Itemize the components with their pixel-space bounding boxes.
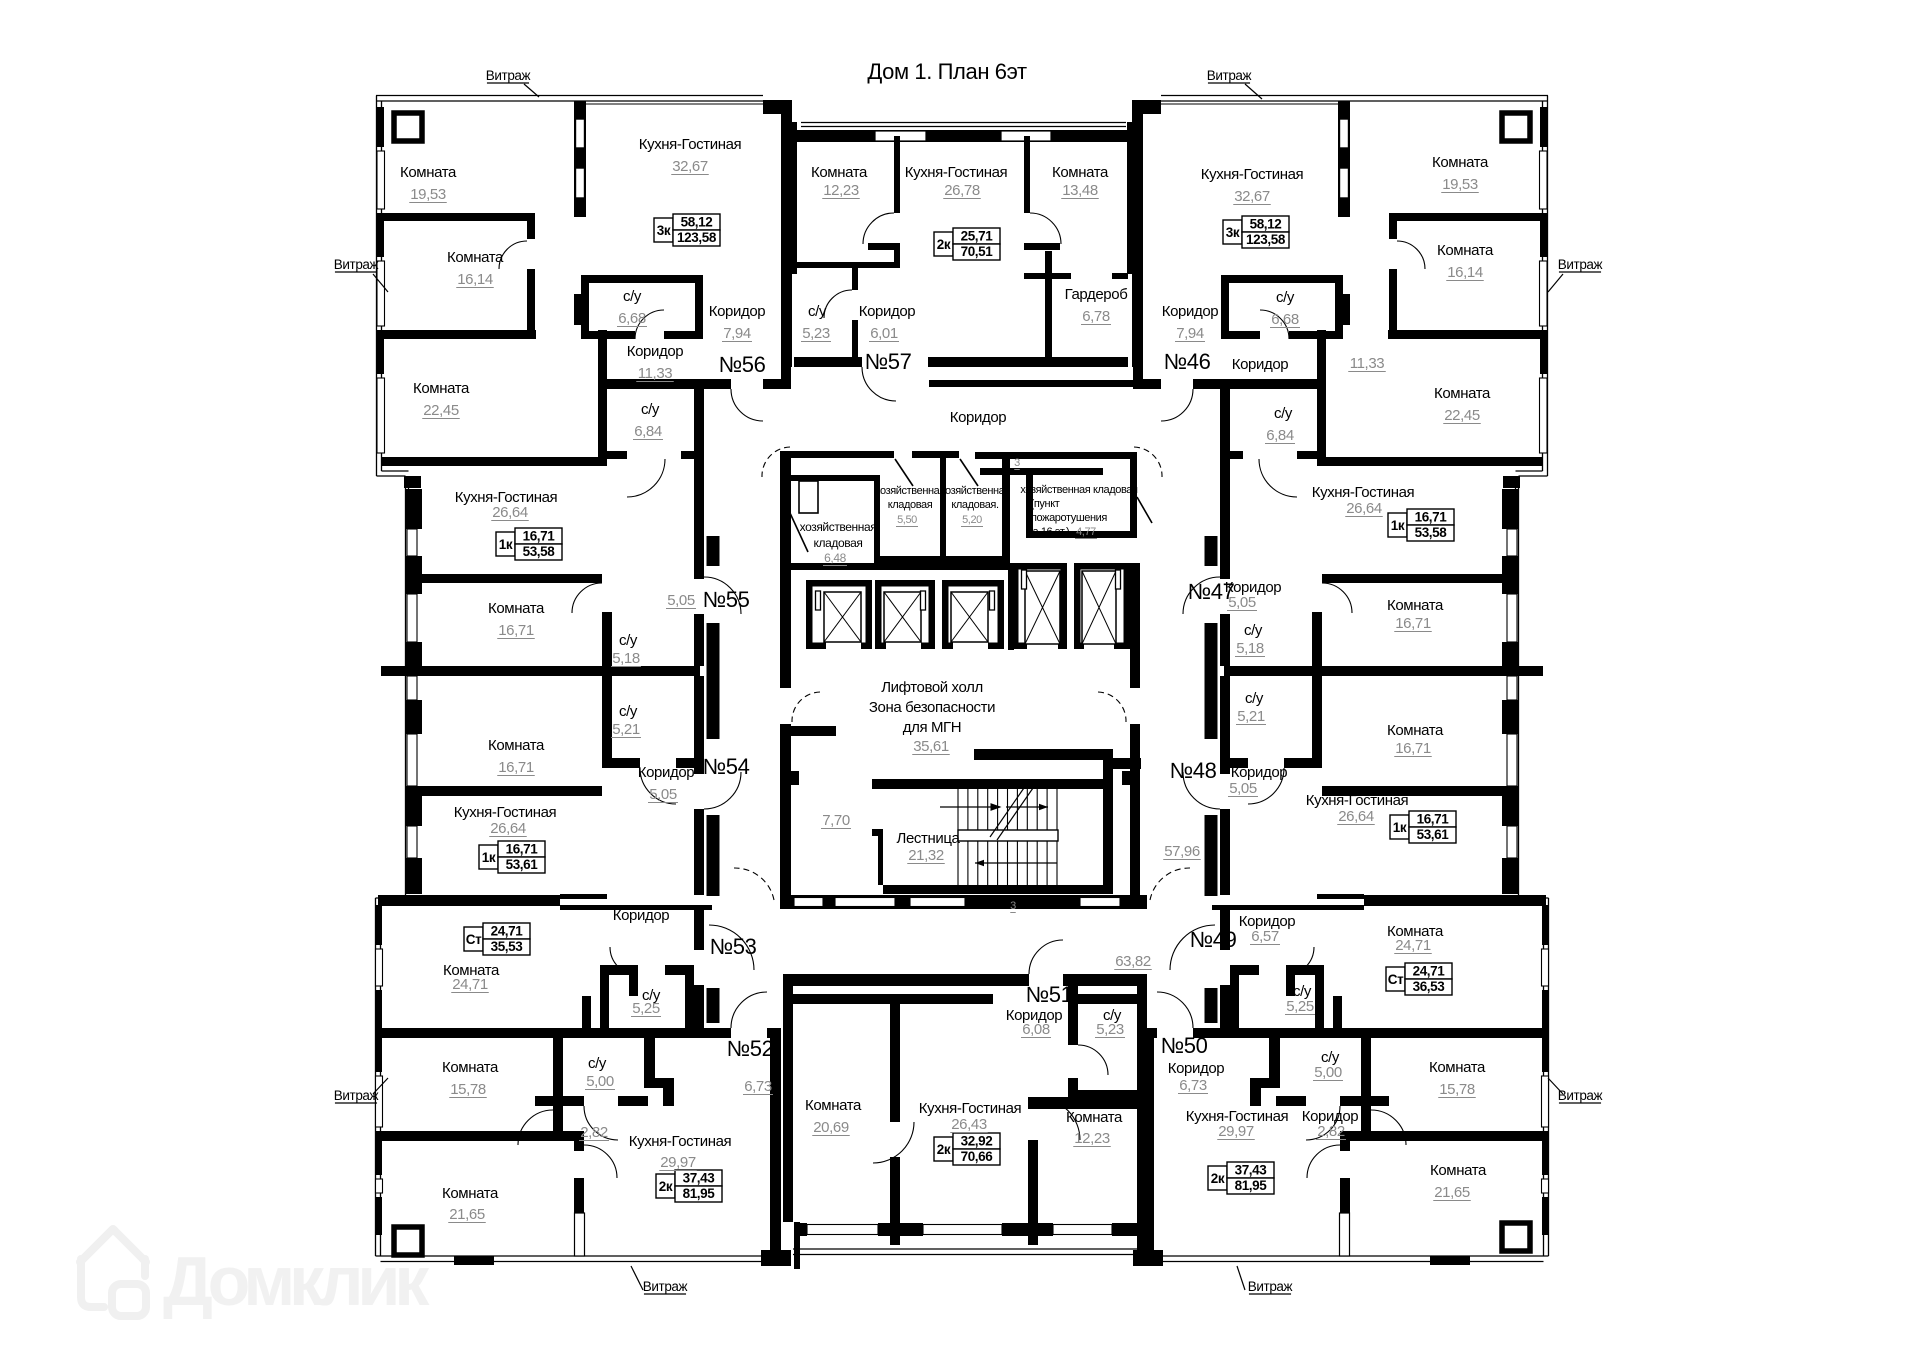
svg-text:1к: 1к (1393, 820, 1407, 835)
svg-text:22,45: 22,45 (423, 402, 459, 419)
svg-text:Кухня-Гостиная: Кухня-Гостиная (454, 804, 557, 821)
svg-text:21,65: 21,65 (1434, 1184, 1470, 1201)
svg-text:3к: 3к (657, 223, 671, 238)
svg-text:29,97: 29,97 (660, 1154, 696, 1171)
svg-text:5,00: 5,00 (1314, 1064, 1342, 1081)
svg-text:81,95: 81,95 (683, 1186, 716, 1201)
svg-text:Комната: Комната (1434, 385, 1491, 402)
svg-text:123,58: 123,58 (677, 230, 717, 245)
svg-text:16,71: 16,71 (498, 622, 534, 639)
svg-text:Витраж: Витраж (334, 257, 379, 272)
svg-text:Лестница: Лестница (897, 830, 961, 847)
svg-text:Коридор: Коридор (950, 409, 1006, 426)
svg-text:26,64: 26,64 (1338, 808, 1374, 825)
svg-text:Комната: Комната (1387, 722, 1444, 739)
svg-text:хозяйственная: хозяйственная (875, 485, 945, 497)
svg-text:№48: №48 (1170, 758, 1217, 783)
svg-text:63,82: 63,82 (1115, 953, 1151, 970)
svg-text:4,77: 4,77 (1076, 526, 1096, 538)
svg-text:5,00: 5,00 (586, 1073, 614, 1090)
svg-text:6,68: 6,68 (618, 310, 646, 327)
svg-text:16,14: 16,14 (457, 271, 493, 288)
svg-text:16,71: 16,71 (1395, 615, 1431, 632)
svg-text:Комната: Комната (1437, 242, 1494, 259)
svg-text:Кухня-Гостиная: Кухня-Гостиная (639, 136, 742, 153)
svg-text:5,23: 5,23 (802, 325, 830, 342)
svg-text:Комната: Комната (1429, 1059, 1486, 1076)
svg-text:7,94: 7,94 (1176, 325, 1204, 342)
svg-text:16,71: 16,71 (523, 529, 556, 544)
svg-text:Гардероб: Гардероб (1065, 286, 1128, 303)
svg-text:Коридор: Коридор (1168, 1060, 1224, 1077)
svg-text:24,71: 24,71 (491, 924, 524, 939)
svg-text:26,64: 26,64 (492, 504, 528, 521)
svg-text:58,12: 58,12 (1250, 217, 1282, 232)
svg-text:6,57: 6,57 (1251, 928, 1279, 945)
svg-text:123,58: 123,58 (1246, 232, 1286, 247)
svg-text:Коридор: Коридор (859, 303, 915, 320)
svg-text:37,43: 37,43 (683, 1171, 716, 1186)
svg-text:3к: 3к (1226, 225, 1240, 240)
svg-text:53,58: 53,58 (523, 544, 556, 559)
svg-text:5,05: 5,05 (1229, 780, 1257, 797)
svg-text:16,71: 16,71 (1417, 812, 1450, 827)
svg-text:с/у: с/у (1276, 289, 1295, 306)
svg-text:Витраж: Витраж (1248, 1279, 1293, 1294)
svg-text:для МГН: для МГН (903, 719, 961, 736)
svg-text:20,69: 20,69 (813, 1119, 849, 1136)
svg-text:Коридор: Коридор (638, 764, 694, 781)
svg-text:на 16 эт.): на 16 эт.) (1027, 526, 1069, 538)
svg-text:24,71: 24,71 (1413, 964, 1446, 979)
svg-text:26,64: 26,64 (490, 820, 526, 837)
svg-text:16,71: 16,71 (498, 759, 534, 776)
svg-text:Комната: Комната (488, 737, 545, 754)
svg-text:№55: №55 (703, 587, 750, 612)
svg-text:1к: 1к (482, 850, 496, 865)
svg-text:6,08: 6,08 (1022, 1021, 1050, 1038)
svg-text:№57: №57 (865, 349, 912, 374)
svg-text:Комната: Комната (442, 1059, 499, 1076)
svg-text:2,82: 2,82 (580, 1124, 608, 1141)
svg-text:Кухня-Гостиная: Кухня-Гостиная (905, 164, 1008, 181)
svg-text:5,25: 5,25 (1286, 998, 1314, 1015)
svg-text:5,25: 5,25 (632, 1000, 660, 1017)
svg-text:Витраж: Витраж (1558, 1088, 1603, 1103)
svg-text:5,50: 5,50 (897, 514, 917, 526)
svg-text:6,68: 6,68 (1271, 311, 1299, 328)
svg-text:70,66: 70,66 (961, 1149, 994, 1164)
svg-text:5,18: 5,18 (1236, 640, 1264, 657)
svg-text:53,58: 53,58 (1415, 525, 1448, 540)
svg-text:24,71: 24,71 (452, 976, 488, 993)
svg-text:Ст: Ст (466, 932, 482, 947)
svg-text:Ст: Ст (1388, 972, 1404, 987)
svg-text:Кухня-Гостиная: Кухня-Гостиная (919, 1100, 1022, 1117)
svg-text:Коридор: Коридор (1232, 356, 1288, 373)
svg-text:Комната: Комната (1430, 1162, 1487, 1179)
svg-text:№51: №51 (1026, 982, 1073, 1007)
svg-text:Кухня-Гостиная: Кухня-Гостиная (1312, 484, 1415, 501)
svg-text:81,95: 81,95 (1235, 1178, 1268, 1193)
svg-text:Комната: Комната (400, 164, 457, 181)
svg-text:13,48: 13,48 (1062, 182, 1098, 199)
svg-text:хозяйственная кладовая: хозяйственная кладовая (1020, 484, 1138, 496)
svg-text:5,05: 5,05 (667, 592, 695, 609)
svg-text:37,43: 37,43 (1235, 1163, 1268, 1178)
svg-text:Коридор: Коридор (627, 343, 683, 360)
svg-text:3: 3 (1010, 900, 1016, 912)
svg-text:5,05: 5,05 (1228, 594, 1256, 611)
svg-text:Витраж: Витраж (334, 1088, 379, 1103)
svg-text:5,05: 5,05 (649, 786, 677, 803)
svg-text:36,53: 36,53 (1413, 979, 1446, 994)
svg-text:с/у: с/у (588, 1055, 607, 1072)
svg-text:Кухня-Гостиная: Кухня-Гостиная (629, 1133, 732, 1150)
svg-text:№52: №52 (727, 1036, 774, 1061)
svg-text:2к: 2к (1211, 1171, 1225, 1186)
svg-text:6,84: 6,84 (634, 423, 662, 440)
svg-text:Кухня-Гостиная: Кухня-Гостиная (1306, 792, 1409, 809)
svg-text:24,71: 24,71 (1395, 937, 1431, 954)
svg-text:2к: 2к (937, 1142, 951, 1157)
svg-text:58,12: 58,12 (681, 215, 713, 230)
svg-text:6,73: 6,73 (1179, 1077, 1207, 1094)
svg-text:32,67: 32,67 (672, 158, 708, 175)
svg-text:пожаротушения: пожаротушения (1031, 512, 1107, 524)
svg-text:Комната: Комната (1432, 154, 1489, 171)
svg-text:1к: 1к (499, 537, 513, 552)
svg-text:кладовая: кладовая (888, 499, 933, 511)
svg-text:32,67: 32,67 (1234, 188, 1270, 205)
svg-text:с/у: с/у (641, 401, 660, 418)
svg-text:2к: 2к (937, 237, 951, 252)
svg-text:№54: №54 (703, 754, 750, 779)
svg-text:(пункт: (пункт (1031, 498, 1060, 510)
svg-text:Домклик: Домклик (163, 1242, 430, 1320)
svg-text:19,53: 19,53 (410, 186, 446, 203)
svg-text:с/у: с/у (1274, 405, 1293, 422)
svg-text:Комната: Комната (442, 1185, 499, 1202)
svg-text:35,53: 35,53 (491, 939, 524, 954)
svg-text:5,21: 5,21 (612, 721, 640, 738)
svg-text:Коридор: Коридор (709, 303, 765, 320)
svg-text:Комната: Комната (805, 1097, 862, 1114)
svg-text:Комната: Комната (811, 164, 868, 181)
svg-text:6,84: 6,84 (1266, 427, 1294, 444)
svg-text:26,43: 26,43 (951, 1116, 987, 1133)
svg-text:кладовая: кладовая (814, 536, 863, 550)
svg-text:35,61: 35,61 (913, 738, 949, 755)
svg-text:№49: №49 (1190, 927, 1237, 952)
svg-text:19,53: 19,53 (1442, 176, 1478, 193)
svg-text:32,92: 32,92 (961, 1134, 993, 1149)
svg-text:16,14: 16,14 (1447, 264, 1483, 281)
svg-text:15,78: 15,78 (1439, 1081, 1475, 1098)
svg-text:Коридор: Коридор (1231, 764, 1287, 781)
svg-text:5,21: 5,21 (1237, 708, 1265, 725)
svg-text:5,23: 5,23 (1096, 1021, 1124, 1038)
svg-text:57,96: 57,96 (1164, 843, 1200, 860)
svg-text:12,23: 12,23 (823, 182, 859, 199)
svg-text:Витраж: Витраж (1558, 257, 1603, 272)
svg-text:с/у: с/у (1244, 622, 1263, 639)
svg-text:6,73: 6,73 (744, 1078, 772, 1095)
svg-text:22,45: 22,45 (1444, 407, 1480, 424)
svg-text:Зона безопасности: Зона безопасности (869, 699, 995, 716)
svg-text:11,33: 11,33 (638, 365, 672, 382)
svg-text:7,94: 7,94 (723, 325, 751, 342)
svg-text:53,61: 53,61 (1417, 827, 1450, 842)
svg-text:6,78: 6,78 (1082, 308, 1110, 325)
svg-text:53,61: 53,61 (506, 857, 539, 872)
svg-text:12,23: 12,23 (1074, 1130, 1110, 1147)
svg-text:15,78: 15,78 (450, 1081, 486, 1098)
svg-text:6,48: 6,48 (824, 551, 846, 565)
svg-text:№46: №46 (1164, 349, 1211, 374)
svg-text:Коридор: Коридор (613, 907, 669, 924)
svg-text:№50: №50 (1161, 1033, 1208, 1058)
svg-text:21,32: 21,32 (908, 847, 944, 864)
svg-text:3: 3 (1014, 457, 1020, 469)
svg-text:Комната: Комната (413, 380, 470, 397)
svg-text:2к: 2к (659, 1179, 673, 1194)
svg-text:хозяйственная: хозяйственная (800, 520, 877, 534)
svg-text:Комната: Комната (1052, 164, 1109, 181)
svg-text:Комната: Комната (1387, 597, 1444, 614)
svg-text:Витраж: Витраж (486, 68, 531, 83)
svg-text:26,78: 26,78 (944, 182, 980, 199)
svg-text:Витраж: Витраж (643, 1279, 688, 1294)
svg-text:16,71: 16,71 (1415, 510, 1448, 525)
svg-text:7,70: 7,70 (822, 812, 850, 829)
svg-text:Комната: Комната (1066, 1109, 1123, 1126)
svg-text:хозяйственная: хозяйственная (940, 485, 1010, 497)
svg-text:Комната: Комната (488, 600, 545, 617)
svg-text:16,71: 16,71 (1395, 740, 1431, 757)
svg-text:29,97: 29,97 (1218, 1123, 1254, 1140)
svg-text:Витраж: Витраж (1207, 68, 1252, 83)
svg-text:№53: №53 (710, 934, 757, 959)
svg-text:Дом 1. План 6эт: Дом 1. План 6эт (867, 59, 1027, 84)
svg-text:с/у: с/у (623, 288, 642, 305)
svg-text:70,51: 70,51 (961, 244, 994, 259)
svg-text:с/у: с/у (619, 703, 638, 720)
svg-text:21,65: 21,65 (449, 1206, 485, 1223)
svg-text:1к: 1к (1391, 518, 1405, 533)
svg-text:Коридор: Коридор (1162, 303, 1218, 320)
svg-text:11,33: 11,33 (1350, 355, 1384, 372)
svg-text:с/у: с/у (619, 632, 638, 649)
svg-text:2,82: 2,82 (1317, 1123, 1345, 1140)
svg-text:№56: №56 (719, 352, 766, 377)
svg-text:Лифтовой холл: Лифтовой холл (881, 679, 983, 696)
svg-text:5,20: 5,20 (962, 514, 982, 526)
svg-text:25,71: 25,71 (961, 229, 994, 244)
svg-text:с/у: с/у (1245, 690, 1264, 707)
svg-text:6,01: 6,01 (870, 325, 898, 342)
svg-text:16,71: 16,71 (506, 842, 539, 857)
svg-text:26,64: 26,64 (1346, 500, 1382, 517)
svg-text:кладовая.: кладовая. (951, 499, 999, 511)
svg-text:5,18: 5,18 (612, 650, 640, 667)
svg-text:с/у: с/у (808, 303, 827, 320)
svg-text:Комната: Комната (447, 249, 504, 266)
svg-text:Кухня-Гостиная: Кухня-Гостиная (1201, 166, 1304, 183)
